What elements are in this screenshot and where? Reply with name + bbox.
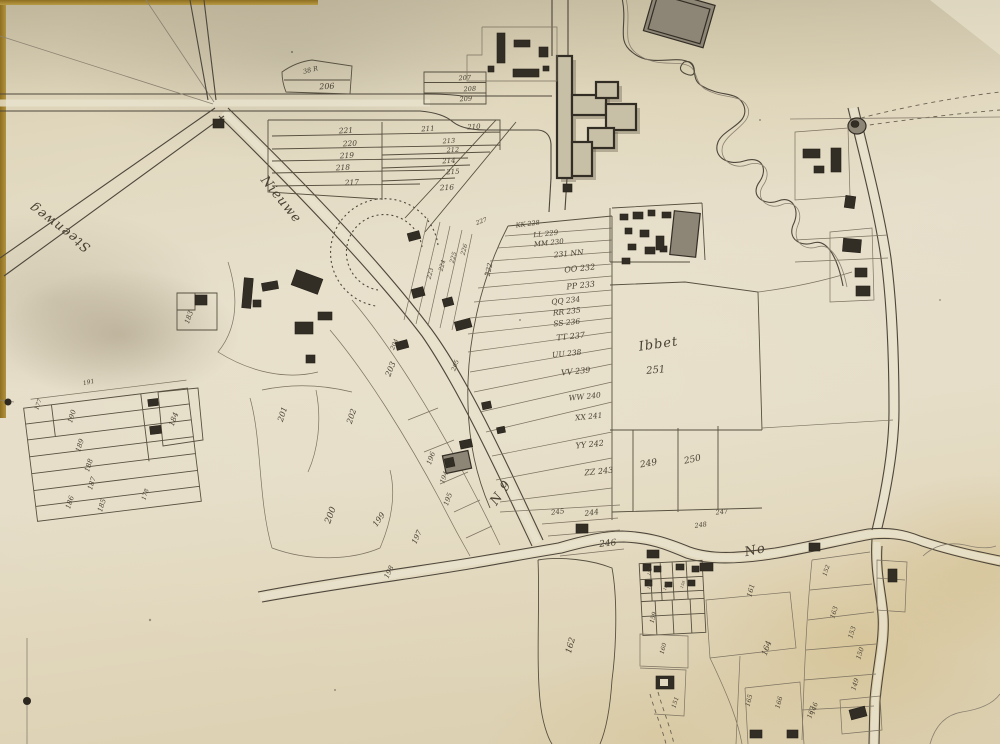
parcel-label: 201 bbox=[276, 406, 290, 424]
parcel-label: 203 bbox=[383, 360, 397, 378]
parcel-label: QQ 234 bbox=[551, 294, 581, 306]
parcel-label: 205 bbox=[450, 359, 461, 373]
parcel-label: PP 233 bbox=[565, 280, 595, 292]
parcel-label: 166 bbox=[774, 695, 785, 709]
parcel-label: 194 bbox=[438, 470, 450, 484]
parcel-label: 247 bbox=[714, 507, 729, 516]
parcel-label: 225 bbox=[448, 251, 458, 265]
parcel-label: 207 bbox=[457, 74, 472, 83]
parcel-label: XX 241 bbox=[574, 411, 603, 423]
parcel-label: 250 bbox=[682, 453, 702, 467]
parcel-label: 200 bbox=[323, 505, 339, 526]
parcel-label: 152 bbox=[821, 564, 831, 577]
parcel-label: RR 235 bbox=[551, 306, 581, 318]
parcel-label: 189 bbox=[74, 437, 86, 453]
parcel-label: 218 bbox=[334, 163, 350, 173]
parcel-label: 164 bbox=[760, 639, 774, 656]
parcel-label: 210 bbox=[466, 123, 481, 132]
parcel-label: 224 bbox=[437, 259, 447, 273]
parcel-label: 163 bbox=[828, 605, 839, 619]
parcel-label: 217 bbox=[343, 178, 359, 188]
parcel-label: VV 239 bbox=[561, 366, 591, 378]
place-label: Ibbet bbox=[637, 334, 679, 355]
parcel-label: 151 bbox=[670, 696, 680, 709]
parcel-label: 206 bbox=[318, 82, 335, 92]
parcel-label: 191 bbox=[82, 378, 95, 387]
parcel-label: 196 bbox=[425, 450, 437, 466]
parcel-label: 161 bbox=[745, 583, 756, 598]
parcel-label: 248 bbox=[693, 520, 707, 530]
parcel-label: 212 bbox=[445, 146, 459, 155]
parcel-label: 159 bbox=[649, 611, 659, 624]
parcel-label: 202 bbox=[345, 408, 359, 426]
road-label: Nieuwe bbox=[257, 172, 305, 226]
parcel-label: 185 bbox=[96, 497, 108, 513]
parcel-label: 162 bbox=[564, 636, 578, 654]
parcel-label: 177 bbox=[33, 398, 44, 411]
parcel-label: SS 236 bbox=[553, 317, 581, 329]
parcel-label: UU 238 bbox=[552, 347, 582, 359]
parcel-label: 244 bbox=[583, 507, 600, 518]
parcel-label: WW 240 bbox=[568, 390, 601, 402]
road-label: Steenweg bbox=[26, 199, 93, 255]
parcel-label: 251 bbox=[645, 364, 666, 377]
parcel-label: 222 bbox=[484, 262, 495, 278]
parcel-label: 209 bbox=[458, 95, 472, 104]
parcel-label: TT 237 bbox=[556, 330, 586, 342]
parcel-label: 213 bbox=[441, 137, 455, 146]
parcel-label: 165 bbox=[744, 693, 755, 707]
parcel-label: 245 bbox=[550, 507, 566, 517]
parcel-label: 149 bbox=[849, 677, 860, 691]
parcel-label: OO 232 bbox=[564, 262, 596, 274]
parcel-label: 221 bbox=[337, 126, 353, 136]
parcel-label: 214 bbox=[441, 157, 456, 166]
map-canvas: SteenwegNieuweIbbetNoN 938 R206207208209… bbox=[0, 0, 1000, 744]
parcel-label: 190 bbox=[66, 408, 78, 424]
parcel-label: 215 bbox=[445, 168, 460, 177]
parcel-label: YY 242 bbox=[575, 439, 604, 451]
parcel-label: 219 bbox=[338, 151, 354, 161]
parcel-label: 197 bbox=[410, 528, 424, 545]
parcel-label: 183 bbox=[183, 309, 195, 325]
parcel-label: 208 bbox=[462, 85, 476, 94]
parcel-label: 227 bbox=[474, 216, 488, 227]
parcel-label: 188 bbox=[83, 457, 95, 473]
parcel-label: ZZ 243 bbox=[583, 466, 614, 478]
parcel-label: 216 bbox=[438, 183, 454, 193]
parcel-label: 249 bbox=[638, 458, 658, 471]
church-building bbox=[557, 56, 640, 192]
parcel-label: KK 228 bbox=[514, 219, 540, 230]
parcel-label: 187 bbox=[86, 475, 98, 491]
parcel-label: 195 bbox=[442, 491, 454, 507]
parcel-label: 158 bbox=[679, 580, 686, 589]
parcel-label: 223 bbox=[425, 267, 435, 281]
parcel-label: 186 bbox=[64, 494, 76, 510]
parcel-label: MM 230 bbox=[532, 237, 564, 248]
parcel-label: 150 bbox=[854, 646, 865, 660]
parcel-label: 38 R bbox=[302, 64, 319, 75]
parcel-label: 246 bbox=[598, 538, 617, 550]
parcel-label: 211 bbox=[420, 125, 435, 134]
parcel-label: 178 bbox=[140, 488, 150, 501]
parcel-label: 184 bbox=[167, 411, 180, 428]
parcel-label: 199 bbox=[371, 511, 387, 529]
parcel-label: 220 bbox=[341, 139, 357, 149]
parcel-label: 231 NN bbox=[552, 247, 584, 259]
parcel-label: 153 bbox=[846, 625, 857, 639]
parcel-label: 160 bbox=[659, 642, 669, 655]
scanned-map-page: SteenwegNieuweIbbetNoN 938 R206207208209… bbox=[0, 0, 1000, 744]
